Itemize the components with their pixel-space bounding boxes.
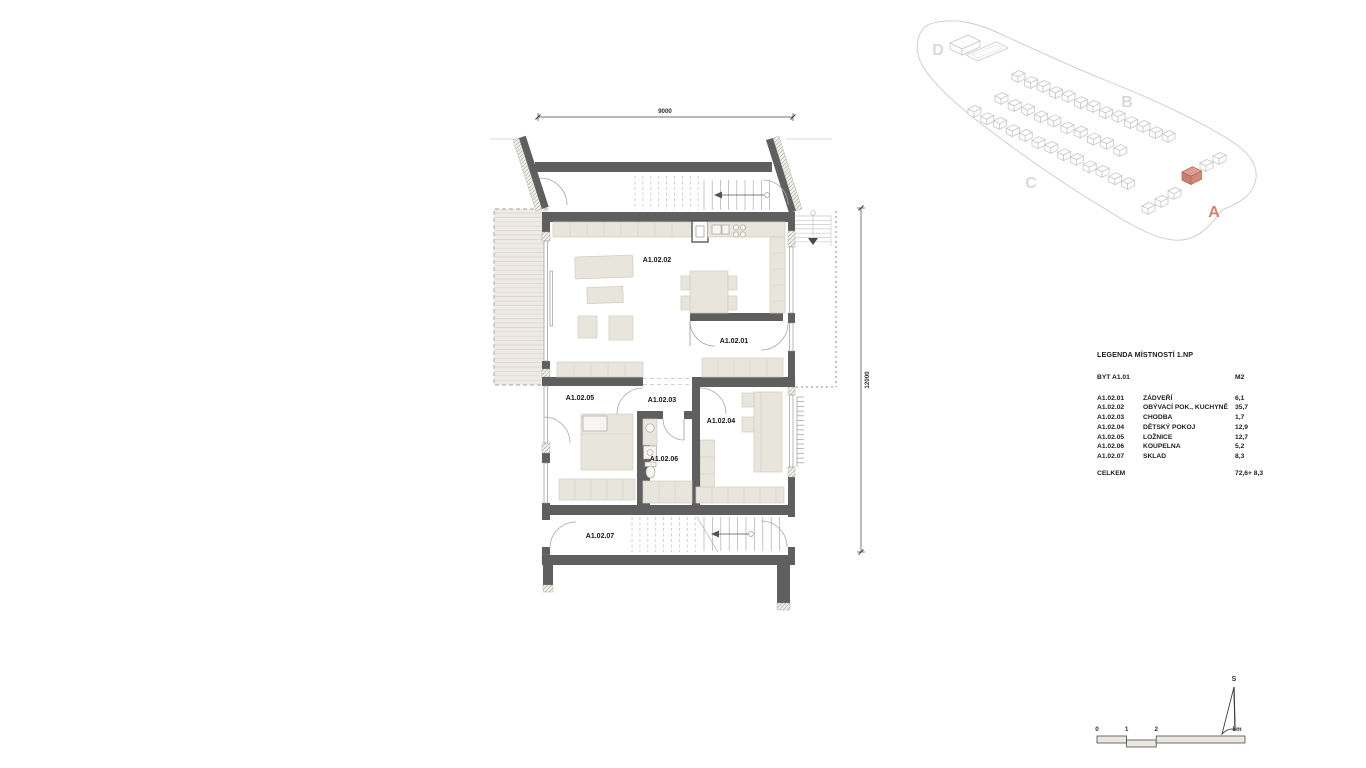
legend-row: A1.02.06KOUPELNA5,2 (1097, 442, 1273, 452)
site-plan: D B C A (900, 10, 1265, 250)
dining-chair (681, 296, 690, 310)
site-label-d: D (932, 42, 944, 59)
scale-tick-1: 1 (1125, 726, 1129, 733)
legend-row: A1.02.02OBÝVACÍ POK., KUCHYNĚ35,7 (1097, 403, 1273, 413)
wardrobe (702, 358, 783, 377)
legend-row: A1.02.07SKLAD8,3 (1097, 452, 1273, 462)
bathtub (643, 481, 692, 503)
north-label: S (1232, 676, 1237, 683)
floor-plan: A1.02.02 A1.02.01 A1.02.05 A1.02.03 A1.0… (480, 85, 900, 625)
legend-total-row: CELKEM 72,6+ 8,3 (1097, 469, 1273, 479)
terrace (494, 209, 548, 385)
legend-apartment: BYT A1.01 (1097, 373, 1235, 383)
coffee-table (587, 286, 624, 303)
staircase-top (635, 176, 770, 210)
room-label-a1-02-01: A1.02.01 (720, 338, 749, 345)
staircase-bottom (632, 517, 780, 552)
armchair (609, 316, 633, 340)
sliding-door-leaf (550, 271, 553, 326)
dimension-right: 12000 (857, 206, 871, 555)
room-label-a1-02-04: A1.02.04 (707, 418, 736, 425)
legend-row: A1.02.01ZÁDVEŘÍ6,1 (1097, 394, 1273, 404)
exterior-stairs (794, 211, 831, 246)
legend-row: A1.02.05LOŽNICE12,7 (1097, 433, 1273, 443)
stove-burner (733, 232, 738, 237)
site-label-a: A (1208, 204, 1220, 221)
kitchen-counter (553, 222, 692, 237)
wardrobe (701, 440, 715, 490)
wall-opening-dashes (643, 379, 692, 385)
room-label-a1-02-03: A1.02.03 (648, 397, 677, 404)
wardrobe (559, 479, 635, 500)
stove-burner (733, 225, 738, 230)
site-buildings (968, 71, 1226, 215)
armchair (578, 316, 597, 338)
legend-total-value: 72,6+ 8,3 (1235, 469, 1273, 479)
scale-and-north: S 0 1 2 5m (1088, 670, 1268, 755)
room-label-a1-02-06: A1.02.06 (650, 456, 679, 463)
room-label-a1-02-02: A1.02.02 (643, 257, 672, 264)
scale-tick-5m: 5m (1232, 726, 1242, 733)
wardrobe (557, 362, 643, 377)
sofa (575, 255, 634, 279)
bed (696, 487, 784, 503)
toilet (646, 466, 655, 478)
room-label-a1-02-07: A1.02.07 (586, 533, 615, 540)
scale-tick-2: 2 (1154, 726, 1158, 733)
legend-total-label: CELKEM (1097, 469, 1235, 479)
legend-unit-header: M2 (1235, 373, 1273, 383)
dining-chair (728, 296, 737, 310)
legend-title: LEGENDA MÍSTNOSTÍ 1.NP (1097, 350, 1273, 359)
legend-row: A1.02.04DĚTSKÝ POKOJ12,9 (1097, 423, 1273, 433)
site-label-b: B (1121, 94, 1133, 111)
kitchen-sink (712, 225, 721, 234)
scale-bar: 0 1 2 5m (1095, 726, 1245, 747)
dining-chair (681, 276, 690, 290)
railing-symbol (797, 397, 804, 467)
room-legend: LEGENDA MÍSTNOSTÍ 1.NP BYT A1.01 M2 A1.0… (1097, 350, 1273, 478)
dining-chair (728, 276, 737, 290)
svg-text:9000: 9000 (658, 108, 672, 115)
stove-burner (740, 232, 745, 237)
room-label-a1-02-05: A1.02.05 (566, 395, 595, 402)
kitchen-tall-unit (770, 237, 785, 313)
scale-tick-0: 0 (1095, 726, 1099, 733)
drawing-sheet: A1.02.02 A1.02.01 A1.02.05 A1.02.03 A1.0… (0, 0, 1366, 768)
site-building-d (950, 35, 1008, 61)
dimension-top: 9000 (536, 108, 796, 121)
dining-table (690, 271, 728, 313)
site-label-c: C (1025, 175, 1037, 192)
stove-burner (740, 225, 745, 230)
pillow (583, 416, 607, 431)
legend-row: A1.02.03CHODBA1,7 (1097, 413, 1273, 423)
desk-wardrobe (754, 392, 782, 472)
svg-text:12000: 12000 (864, 371, 871, 389)
washbasin (646, 424, 654, 432)
